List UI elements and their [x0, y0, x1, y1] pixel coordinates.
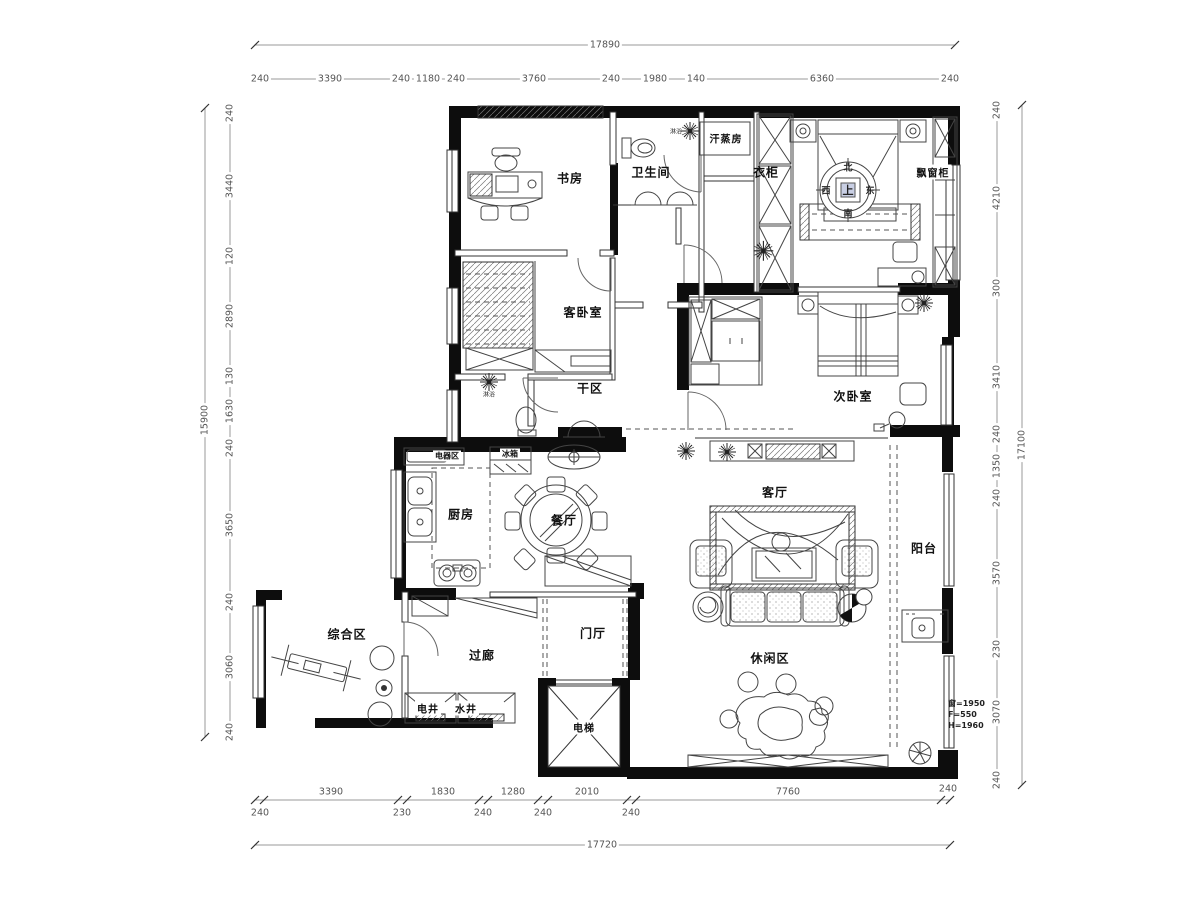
- floor-plan-canvas: 书房 卫生间 汗蒸房 衣柜 飘窗柜 客卧室 干区 次卧室 电器区 冰箱 厨房 餐…: [0, 0, 1200, 910]
- label-water-shaft: 水井: [453, 701, 479, 716]
- door-guest-bedroom: [578, 258, 611, 291]
- room-label-second-bedroom: 次卧室: [833, 388, 872, 405]
- label-electric-shaft: 电井: [415, 701, 441, 716]
- dim-bottom-seg-7: 2010: [573, 787, 601, 798]
- dim-bottom-seg-9: 7760: [774, 787, 802, 798]
- dim-right-seg-4: 240: [992, 423, 1003, 445]
- dim-top-seg-7: 1980: [641, 74, 669, 85]
- dim-right-seg-6: 240: [992, 487, 1003, 509]
- master-bedroom-furniture: [757, 114, 957, 292]
- dim-top-seg-3: 1180: [414, 74, 442, 85]
- room-label-bay-cabinet: 飘窗柜: [915, 165, 952, 180]
- dim-left-seg-10: 240: [225, 721, 236, 743]
- window: [944, 474, 954, 586]
- room-label-guest-bedroom: 客卧室: [563, 304, 602, 321]
- dim-right-seg-5: 1350: [992, 452, 1003, 480]
- dim-bottom-seg-1: 3390: [317, 787, 345, 798]
- plant-icon: [677, 442, 695, 460]
- dim-left-seg-4: 130: [225, 365, 236, 387]
- room-label-living: 客厅: [762, 484, 788, 501]
- dim-bottom-seg-2: 230: [391, 808, 413, 819]
- dim-right-seg-3: 3410: [992, 363, 1003, 391]
- compass-west: 西: [821, 184, 830, 197]
- note-line: 窗=1950: [948, 698, 985, 709]
- shower-icon: [681, 122, 699, 140]
- plant-icon: [718, 443, 736, 461]
- room-label-leisure: 休闲区: [750, 650, 789, 667]
- note-line: F=550: [948, 709, 985, 720]
- study-furniture: [468, 148, 542, 220]
- dim-top-total: 17890: [588, 40, 622, 51]
- dim-left-seg-7: 3650: [225, 511, 236, 539]
- compass-north: 北: [843, 161, 852, 174]
- balcony-furniture: [902, 610, 948, 764]
- door-second-bedroom: [688, 392, 726, 430]
- label-elevator: 电梯: [571, 720, 597, 735]
- window: [941, 345, 952, 425]
- dim-left-seg-6: 240: [225, 437, 236, 459]
- dim-bottom-seg-10: 240: [937, 784, 959, 795]
- dim-top-seg-2: 240: [390, 74, 412, 85]
- dim-left-seg-2: 120: [225, 245, 236, 267]
- dim-bottom-seg-0: 240: [249, 808, 271, 819]
- dim-top-seg-10: 240: [939, 74, 961, 85]
- dim-top-seg-5: 3760: [520, 74, 548, 85]
- dim-right-seg-2: 300: [992, 277, 1003, 299]
- compass-south: 南: [843, 207, 852, 220]
- dim-right-seg-9: 3070: [992, 698, 1003, 726]
- dim-bottom-seg-6: 240: [532, 808, 554, 819]
- room-label-corridor: 过廊: [469, 647, 495, 664]
- dim-bottom-seg-4: 240: [472, 808, 494, 819]
- compass-east: 东: [865, 184, 874, 197]
- room-label-dining: 餐厅: [551, 512, 577, 529]
- fan-plant-icon: [909, 742, 931, 764]
- dim-top-seg-6: 240: [600, 74, 622, 85]
- dim-top-seg-4: 240: [445, 74, 467, 85]
- dim-right-seg-1: 4210: [992, 184, 1003, 212]
- room-label-bathroom: 卫生间: [631, 164, 670, 181]
- dim-bottom-seg-5: 1280: [499, 787, 527, 798]
- bay-window-note: 窗=1950 F=550 H=1960: [948, 698, 985, 731]
- dim-left-seg-0: 240: [225, 102, 236, 124]
- label-shower-top: 淋浴: [670, 127, 682, 136]
- door-multi-area: [404, 622, 438, 656]
- dim-top-seg-9: 6360: [808, 74, 836, 85]
- bay-window: [946, 165, 960, 280]
- dim-right-seg-0: 240: [992, 99, 1003, 121]
- dim-left-seg-3: 2890: [225, 302, 236, 330]
- note-line: H=1960: [948, 720, 985, 731]
- room-label-wardrobe: 衣柜: [753, 164, 779, 181]
- room-label-foyer: 门厅: [580, 625, 606, 642]
- dim-top-seg-0: 240: [249, 74, 271, 85]
- dim-bottom-seg-3: 1830: [429, 787, 457, 798]
- dim-right-seg-8: 230: [992, 638, 1003, 660]
- window: [447, 390, 458, 442]
- dim-top-seg-8: 140: [685, 74, 707, 85]
- window: [391, 470, 402, 578]
- room-label-multi-area: 综合区: [327, 626, 366, 643]
- compass-up: 上: [843, 182, 854, 198]
- room-label-kitchen: 厨房: [448, 506, 474, 523]
- dim-left-seg-9: 3060: [225, 653, 236, 681]
- dim-left-seg-8: 240: [225, 591, 236, 613]
- label-fridge: 冰箱: [500, 449, 520, 460]
- dim-top-seg-1: 3390: [316, 74, 344, 85]
- room-label-dry-area: 干区: [577, 380, 603, 397]
- dim-bottom-seg-8: 240: [620, 808, 642, 819]
- window: [253, 606, 264, 698]
- dim-left-seg-1: 3440: [225, 172, 236, 200]
- dim-right-seg-7: 3570: [992, 559, 1003, 587]
- room-label-study: 书房: [557, 170, 583, 187]
- leisure-area-furniture: [688, 672, 888, 767]
- foyer-cabinet: [545, 556, 631, 586]
- room-label-sauna: 汗蒸房: [710, 131, 743, 146]
- dim-left-seg-5: 1630: [225, 397, 236, 425]
- window: [447, 288, 458, 344]
- window: [447, 150, 458, 212]
- dim-right-total: 17100: [1017, 428, 1028, 462]
- label-shower-dry: 淋浴: [483, 390, 495, 399]
- living-room-furniture: [677, 441, 878, 626]
- dim-right-seg-10: 240: [992, 769, 1003, 791]
- room-label-balcony: 阳台: [911, 540, 937, 557]
- label-appliance-area: 电器区: [433, 451, 461, 462]
- dim-left-total: 15900: [200, 403, 211, 437]
- dim-bottom-total: 17720: [585, 840, 619, 851]
- second-bedroom-furniture: [689, 292, 933, 431]
